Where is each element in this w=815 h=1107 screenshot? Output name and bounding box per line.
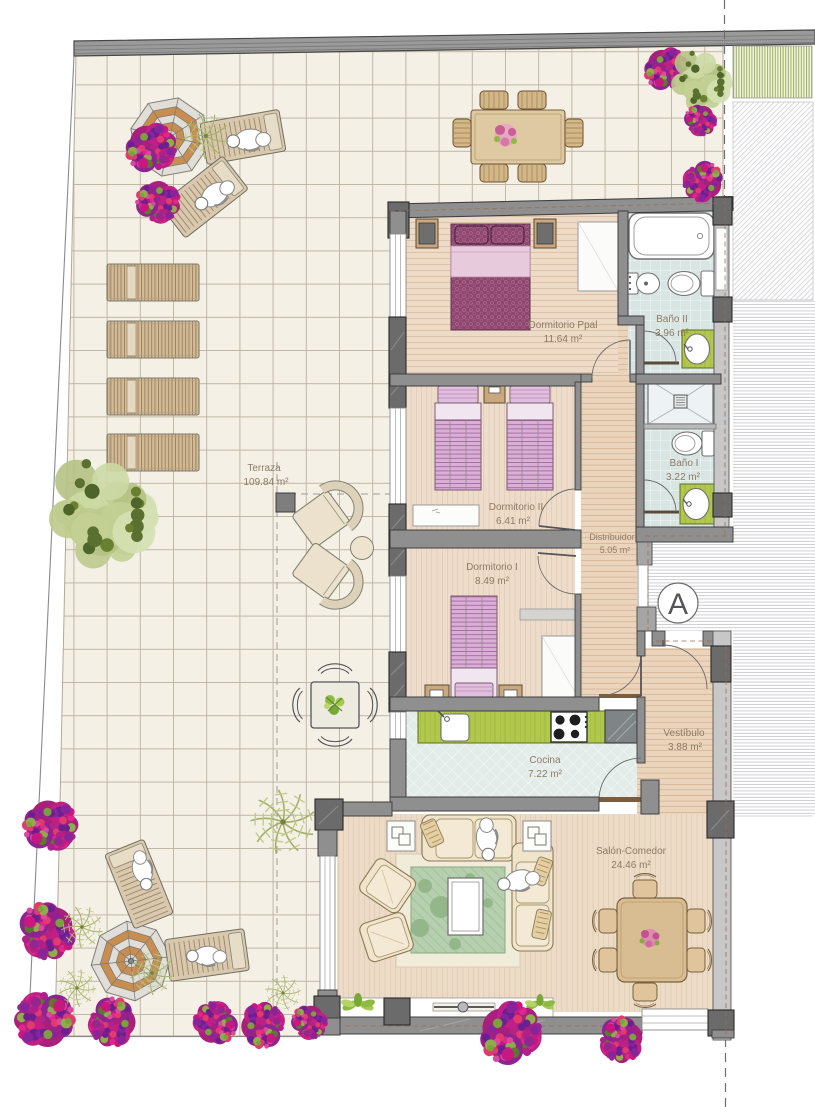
svg-text:Dormitorio Ppal: Dormitorio Ppal [529,320,598,331]
svg-text:5.05 m²: 5.05 m² [600,545,631,555]
svg-text:Baño I: Baño I [670,458,699,469]
svg-text:Baño II: Baño II [656,314,688,325]
svg-text:Vestíbulo: Vestíbulo [663,728,705,739]
svg-text:11.64 m²: 11.64 m² [544,334,583,345]
svg-text:Terraza: Terraza [247,463,281,474]
svg-text:24.46 m²: 24.46 m² [611,860,651,871]
svg-text:Cocina: Cocina [529,755,561,766]
svg-text:7.22 m²: 7.22 m² [528,769,563,780]
svg-text:3.96 m²: 3.96 m² [655,328,690,339]
svg-text:Dormitorio II: Dormitorio II [489,502,543,513]
svg-text:Distribuidor: Distribuidor [589,532,635,542]
svg-text:Salón-Comedor: Salón-Comedor [596,846,667,857]
svg-text:6.41 m²: 6.41 m² [496,516,531,527]
svg-text:109.84 m²: 109.84 m² [243,477,289,488]
svg-text:A: A [668,588,688,621]
svg-text:3.88 m²: 3.88 m² [668,742,703,753]
svg-text:8.49 m²: 8.49 m² [475,576,510,587]
svg-text:Dormitorio I: Dormitorio I [466,562,518,573]
svg-text:3.22 m²: 3.22 m² [666,472,701,483]
